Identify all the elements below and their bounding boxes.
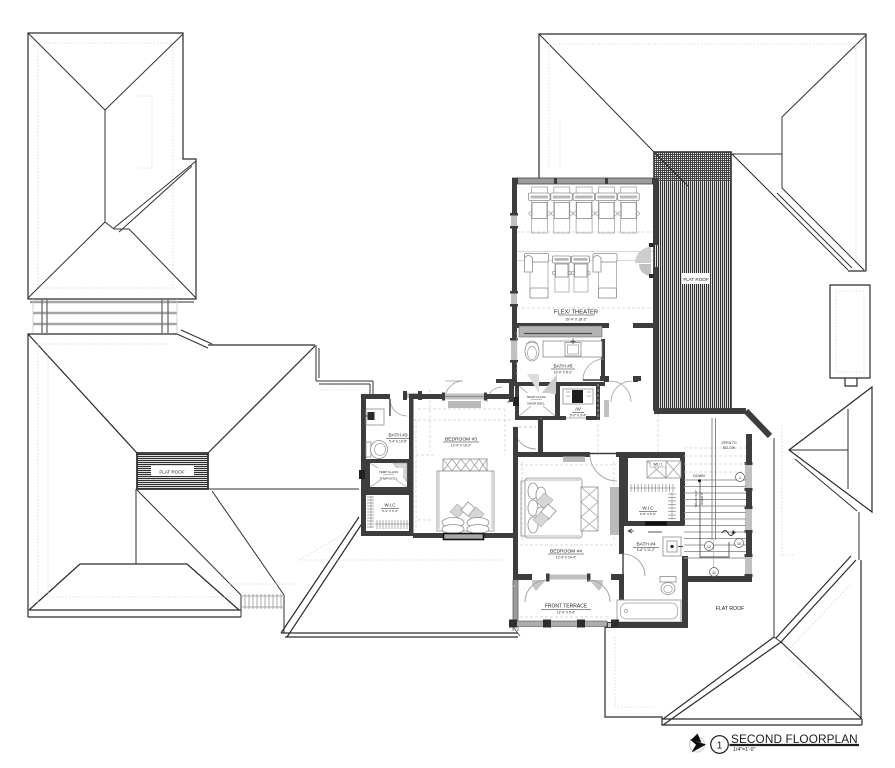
svg-text:W.I.C: W.I.C	[384, 503, 396, 508]
svg-text:BEDROOM #3: BEDROOM #3	[445, 437, 477, 443]
svg-text:19'-4" X 18'-2": 19'-4" X 18'-2"	[565, 318, 587, 322]
svg-text:W.I.C: W.I.C	[642, 506, 654, 511]
svg-text:FLAT ROOF: FLAT ROOF	[683, 277, 709, 282]
svg-text:12'-4" X 14'-4": 12'-4" X 14'-4"	[556, 556, 576, 560]
svg-text:4: 4	[507, 400, 509, 404]
svg-text:6'-8" X 11'-2": 6'-8" X 11'-2"	[637, 548, 655, 552]
svg-text:RISER P: RISER P	[700, 493, 704, 505]
svg-text:1: 1	[717, 740, 723, 752]
svg-text:FRONT TERRACE: FRONT TERRACE	[545, 604, 588, 610]
svg-text:12'-4" X 16'-2": 12'-4" X 16'-2"	[451, 444, 471, 448]
svg-text:10'-0" X 8'-2": 10'-0" X 8'-2"	[554, 371, 572, 375]
svg-text:5'-0" X 3'-4": 5'-0" X 3'-4"	[570, 414, 587, 418]
svg-text:DOWN: DOWN	[693, 474, 705, 478]
svg-text:SHWR ENCL: SHWR ENCL	[379, 477, 397, 481]
svg-text:TEMP GLASS: TEMP GLASS	[379, 470, 398, 474]
svg-text:FLAT ROOF: FLAT ROOF	[159, 470, 185, 475]
svg-text:BATH #4: BATH #4	[636, 542, 655, 548]
svg-text:BATH #3: BATH #3	[388, 433, 407, 439]
svg-text:FLAT ROOF: FLAT ROOF	[716, 606, 745, 612]
svg-text:WIL/ 1: WIL/ 1	[653, 463, 662, 467]
svg-text:12: 12	[707, 545, 711, 549]
svg-text:5'-4" X 3'-0": 5'-4" X 3'-0"	[382, 509, 398, 513]
svg-text:TREAD SUP: TREAD SUP	[694, 490, 698, 507]
svg-text:11: 11	[712, 571, 716, 575]
svg-text:10: 10	[737, 542, 741, 546]
svg-text:AV: AV	[575, 407, 582, 413]
svg-text:FLEX/ THEATER: FLEX/ THEATER	[554, 310, 598, 316]
svg-text:6'-8" X 5'-0": 6'-8" X 5'-0"	[640, 512, 656, 516]
svg-text:TEMP GLASS: TEMP GLASS	[526, 395, 545, 399]
svg-text:OPEN TO: OPEN TO	[721, 441, 736, 445]
svg-text:BEDROOM #4: BEDROOM #4	[550, 549, 582, 555]
svg-text:1: 1	[739, 476, 741, 480]
svg-text:12'-4" X 5'-4": 12'-4" X 5'-4"	[557, 611, 575, 615]
svg-text:SHWR ENCL: SHWR ENCL	[527, 402, 545, 406]
svg-text:1/4"=1'-0": 1/4"=1'-0"	[733, 747, 756, 753]
svg-text:5'-4" X 10'-8": 5'-4" X 10'-8"	[389, 440, 407, 444]
svg-text:BATH #5: BATH #5	[553, 364, 572, 370]
